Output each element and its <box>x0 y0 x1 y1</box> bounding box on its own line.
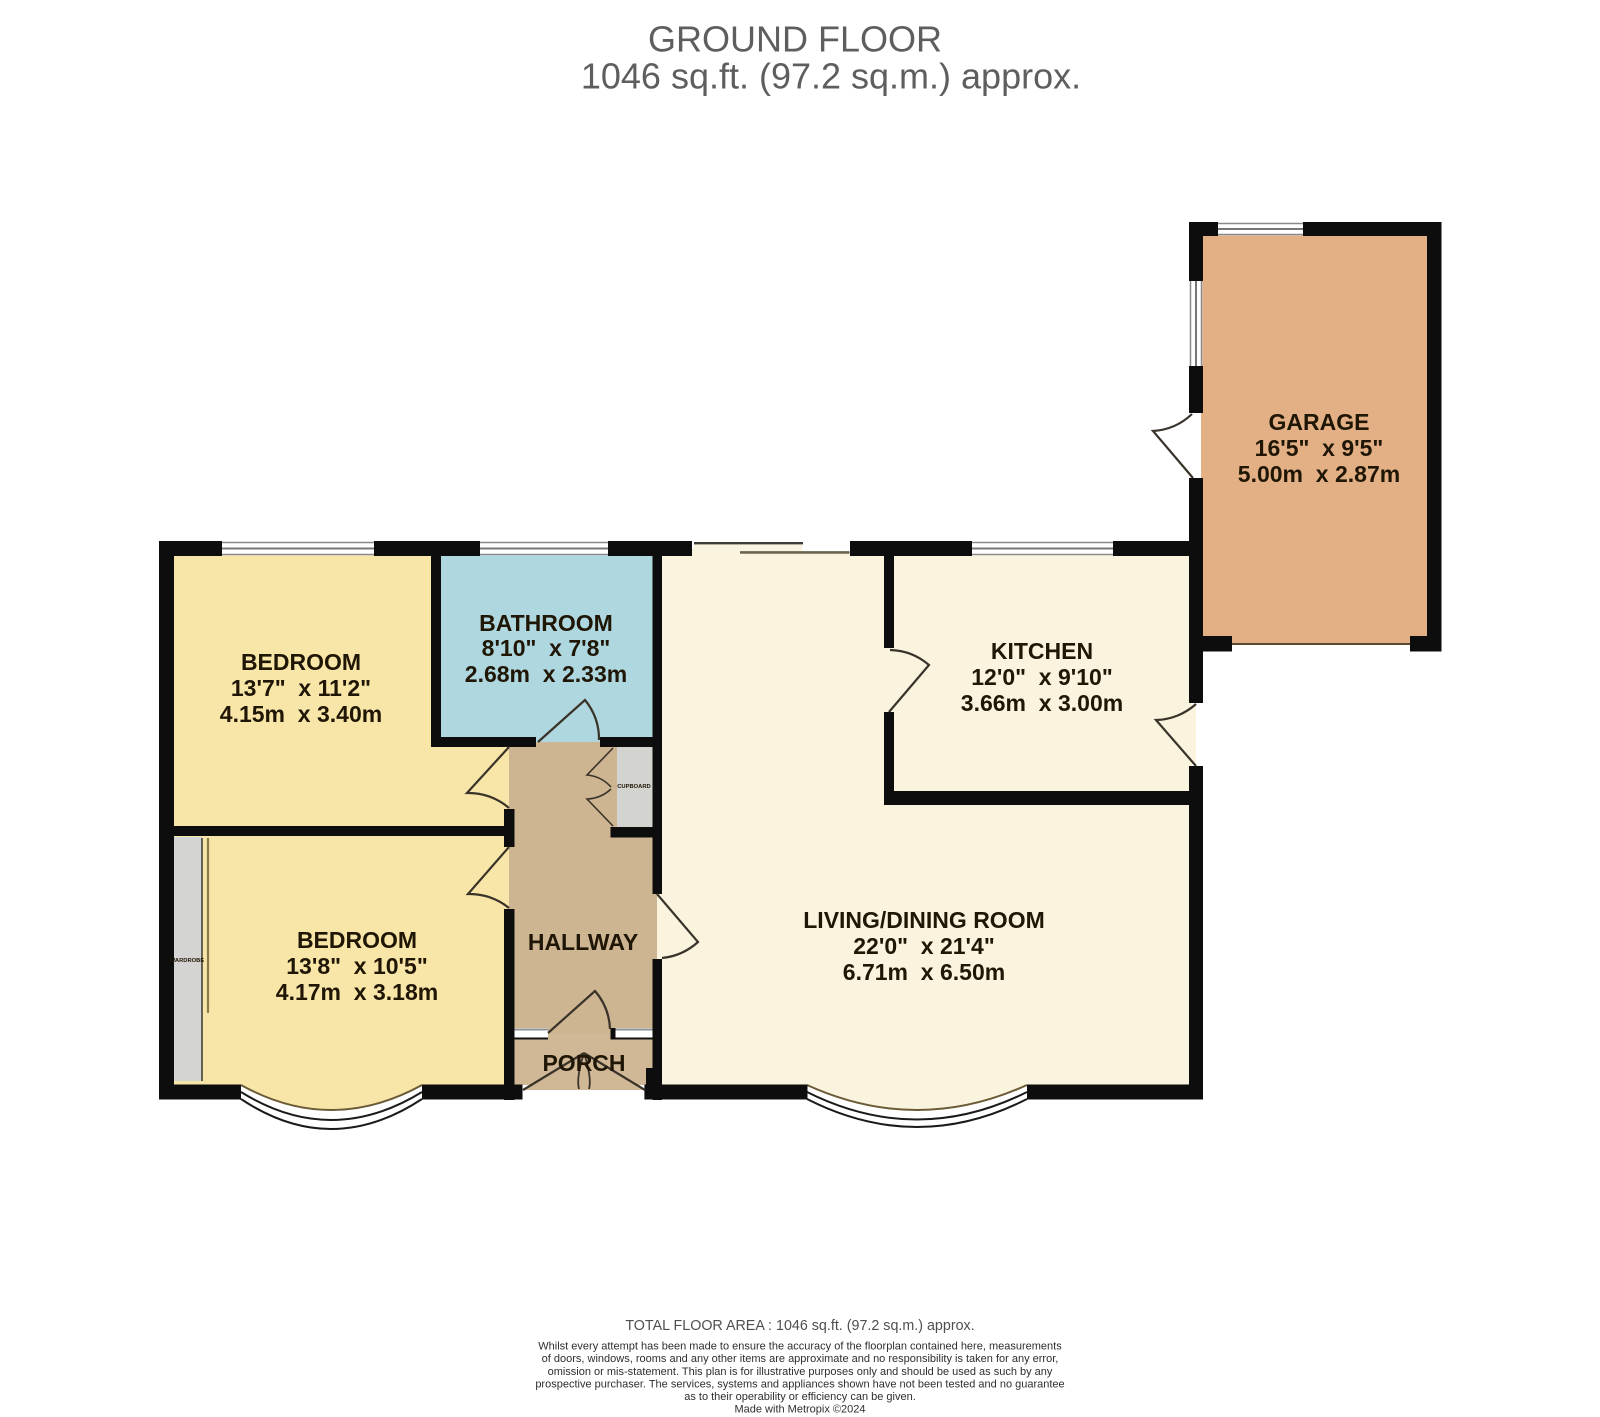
svg-text:prospective purchaser. The ser: prospective purchaser. The services, sys… <box>535 1378 1064 1390</box>
svg-text:BEDROOM: BEDROOM <box>241 649 361 675</box>
svg-text:PORCH: PORCH <box>542 1050 625 1076</box>
svg-text:TOTAL FLOOR AREA : 1046 sq.ft.: TOTAL FLOOR AREA : 1046 sq.ft. (97.2 sq.… <box>625 1318 974 1334</box>
svg-text:GARAGE: GARAGE <box>1269 409 1370 435</box>
svg-text:BEDROOM: BEDROOM <box>297 927 417 953</box>
svg-text:8'10" x 7'8": 8'10" x 7'8" <box>482 635 611 661</box>
svg-text:WARDROBE: WARDROBE <box>170 958 205 964</box>
svg-text:13'8" x 10'5": 13'8" x 10'5" <box>286 953 427 979</box>
svg-text:4.15m x 3.40m: 4.15m x 3.40m <box>220 701 382 727</box>
svg-text:LIVING/DINING ROOM: LIVING/DINING ROOM <box>803 907 1045 933</box>
svg-text:CUPBOARD: CUPBOARD <box>617 784 651 790</box>
svg-text:of doors, windows, rooms and a: of doors, windows, rooms and any other i… <box>542 1353 1059 1365</box>
svg-text:22'0" x 21'4": 22'0" x 21'4" <box>853 933 994 959</box>
svg-text:16'5" x 9'5": 16'5" x 9'5" <box>1255 435 1384 461</box>
svg-text:as to their operability or eff: as to their operability or efficiency ca… <box>684 1391 916 1403</box>
svg-text:5.00m x 2.87m: 5.00m x 2.87m <box>1238 461 1400 487</box>
svg-text:BATHROOM: BATHROOM <box>479 610 613 636</box>
svg-text:13'7" x 11'2": 13'7" x 11'2" <box>231 675 371 701</box>
svg-text:12'0" x 9'10": 12'0" x 9'10" <box>971 664 1112 690</box>
svg-text:6.71m x 6.50m: 6.71m x 6.50m <box>843 959 1005 985</box>
svg-text:4.17m x 3.18m: 4.17m x 3.18m <box>276 979 438 1005</box>
svg-text:HALLWAY: HALLWAY <box>528 929 638 955</box>
svg-text:KITCHEN: KITCHEN <box>991 638 1093 664</box>
svg-text:Whilst every attempt has been: Whilst every attempt has been made to en… <box>538 1341 1062 1353</box>
svg-text:GROUND FLOOR: GROUND FLOOR <box>648 19 942 60</box>
svg-text:3.66m x 3.00m: 3.66m x 3.00m <box>961 690 1123 716</box>
svg-text:2.68m x 2.33m: 2.68m x 2.33m <box>465 661 627 687</box>
svg-text:Made with Metropix ©2024: Made with Metropix ©2024 <box>734 1404 865 1416</box>
svg-text:omission or mis-statement. Thi: omission or mis-statement. This plan is … <box>548 1366 1053 1378</box>
svg-text:1046 sq.ft. (97.2 sq.m.) appro: 1046 sq.ft. (97.2 sq.m.) approx. <box>581 56 1081 97</box>
